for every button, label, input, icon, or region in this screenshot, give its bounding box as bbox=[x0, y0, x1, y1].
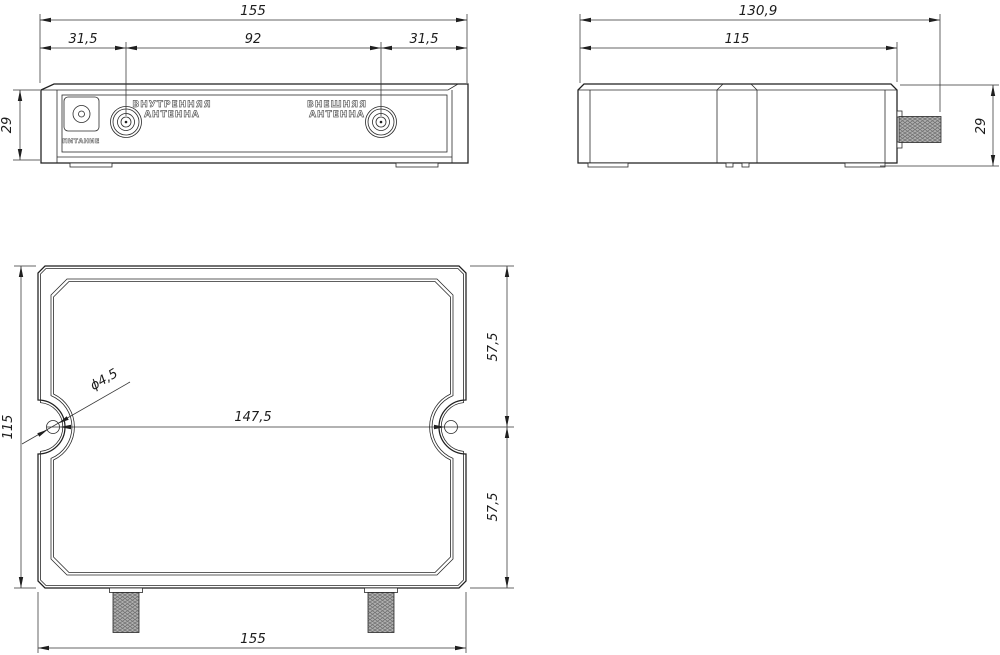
front-dimensions: 155 31,5 92 31,5 29 bbox=[0, 3, 467, 160]
bottom-dimensions: 115 57,5 57,5 147,5 ϕ4,5 155 bbox=[1, 266, 514, 653]
drawing-canvas: ПИТАНИЕ ВНУТРЕННЯЯ АНТЕННА ВНЕШНЯЯ АНТЕН… bbox=[0, 0, 1000, 655]
power-jack bbox=[64, 97, 99, 131]
front-dim-overall-width: 155 bbox=[240, 3, 266, 19]
front-dim-connector-spacing: 92 bbox=[245, 32, 262, 47]
front-left-foot bbox=[70, 163, 112, 167]
technical-drawing-page: ПИТАНИЕ ВНУТРЕННЯЯ АНТЕННА ВНЕШНЯЯ АНТЕН… bbox=[0, 0, 1000, 655]
bottom-left-connector-stud bbox=[110, 588, 143, 633]
front-dim-right-offset: 31,5 bbox=[410, 32, 439, 47]
internal-antenna-label-line1: ВНУТРЕННЯЯ bbox=[132, 100, 211, 110]
front-view: ПИТАНИЕ ВНУТРЕННЯЯ АНТЕННА ВНЕШНЯЯ АНТЕН… bbox=[0, 3, 468, 167]
side-view: 130,9 115 29 bbox=[578, 3, 999, 167]
side-left-foot bbox=[588, 163, 628, 167]
bottom-dim-hole-spacing: 147,5 bbox=[234, 410, 271, 425]
front-dim-left-offset: 31,5 bbox=[69, 32, 98, 47]
front-body-outline bbox=[41, 84, 468, 163]
internal-antenna-label-line2: АНТЕННА bbox=[144, 110, 200, 120]
side-dim-body-depth: 115 bbox=[725, 32, 750, 47]
power-label: ПИТАНИЕ bbox=[62, 138, 99, 145]
external-antenna-label-line1: ВНЕШНЯЯ bbox=[307, 100, 367, 110]
side-right-foot bbox=[845, 163, 885, 167]
side-dim-overall-depth: 130,9 bbox=[739, 3, 778, 19]
bottom-dim-height: 115 bbox=[1, 415, 16, 440]
side-threaded-connector bbox=[897, 111, 941, 148]
side-dim-height: 29 bbox=[974, 118, 989, 135]
front-top-edge bbox=[41, 84, 458, 90]
front-right-foot bbox=[396, 163, 438, 167]
bottom-dim-top-half: 57,5 bbox=[486, 333, 501, 362]
bottom-dim-hole-diameter: ϕ4,5 bbox=[88, 366, 121, 394]
side-mounting-boss bbox=[717, 84, 757, 167]
front-dim-height: 29 bbox=[0, 117, 15, 134]
side-body-outline bbox=[578, 84, 897, 163]
external-antenna-label-line2: АНТЕННА bbox=[309, 110, 365, 120]
bottom-dim-bottom-half: 57,5 bbox=[486, 493, 501, 522]
bottom-right-connector-stud bbox=[365, 588, 398, 633]
bottom-dim-overall-width: 155 bbox=[240, 631, 266, 647]
bottom-view: 115 57,5 57,5 147,5 ϕ4,5 155 bbox=[1, 266, 514, 653]
